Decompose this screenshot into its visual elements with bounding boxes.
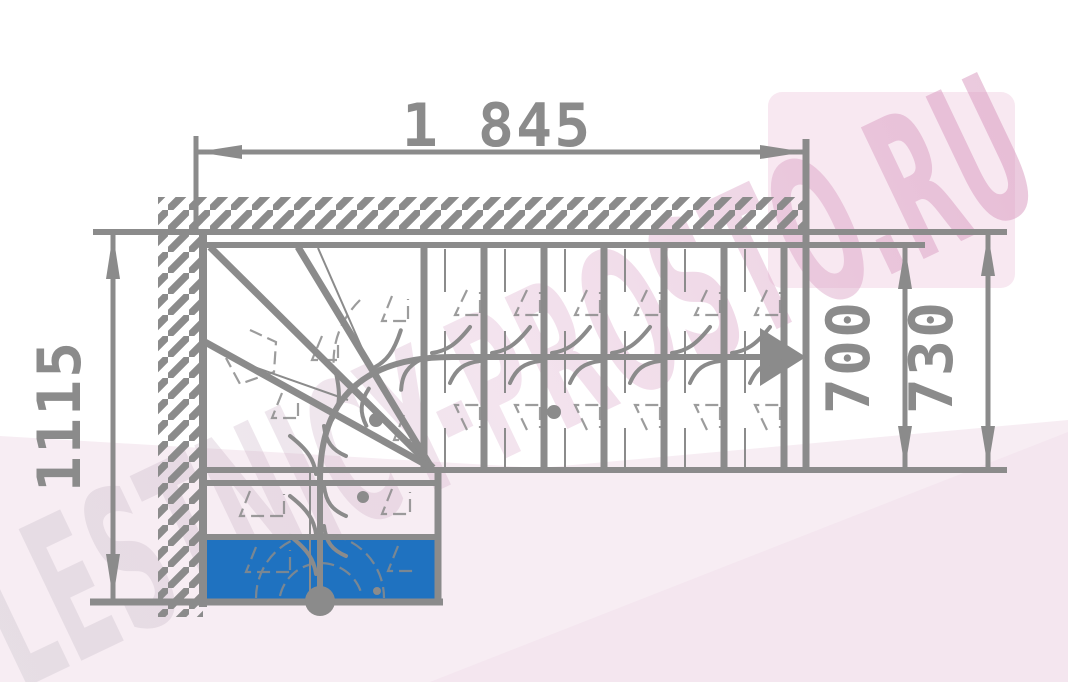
staircase-floor-plan-page: LESTNICY-PROSTO.RU [0, 0, 1068, 682]
dim-label-top-width: 1 845 [402, 91, 593, 161]
dim-label-left-depth: 1115 [25, 340, 95, 493]
staircase-floor-plan-drawing: LESTNICY-PROSTO.RU [0, 0, 1068, 682]
dim-label-flight-outer: 730 [897, 300, 967, 414]
left-wall-hatch [158, 197, 203, 617]
walk-line-start-dot [305, 586, 335, 616]
top-wall-hatch [158, 197, 808, 233]
dim-label-flight-inner: 700 [814, 300, 884, 414]
